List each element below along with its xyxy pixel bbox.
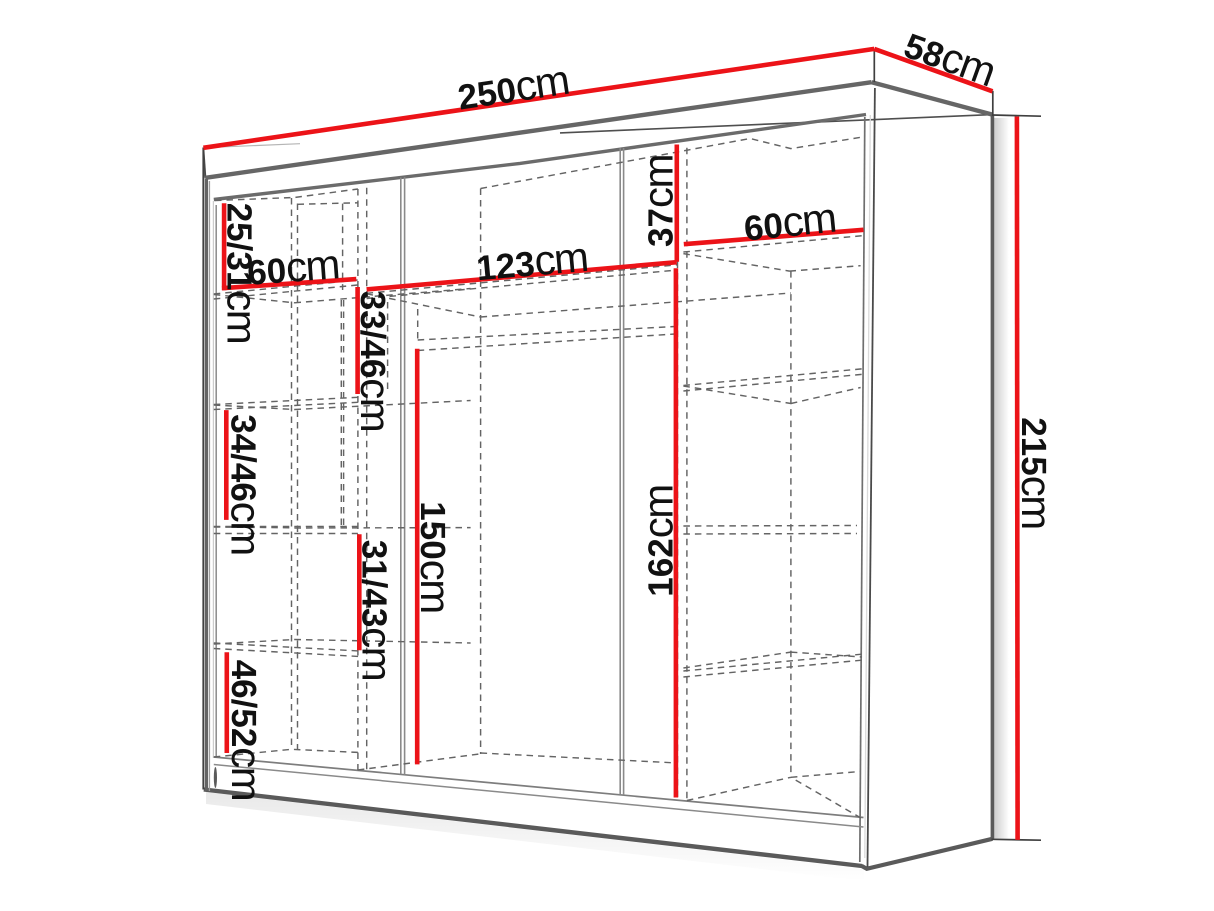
svg-text:37cm: 37cm bbox=[635, 155, 682, 247]
svg-text:46/52cm: 46/52cm bbox=[223, 660, 270, 801]
svg-text:34/46cm: 34/46cm bbox=[223, 414, 270, 555]
svg-text:162cm: 162cm bbox=[635, 485, 682, 596]
svg-text:150cm: 150cm bbox=[412, 501, 459, 612]
svg-text:31/43cm: 31/43cm bbox=[354, 540, 401, 681]
svg-text:33/46cm: 33/46cm bbox=[352, 291, 399, 432]
svg-text:215cm: 215cm bbox=[1013, 417, 1060, 528]
